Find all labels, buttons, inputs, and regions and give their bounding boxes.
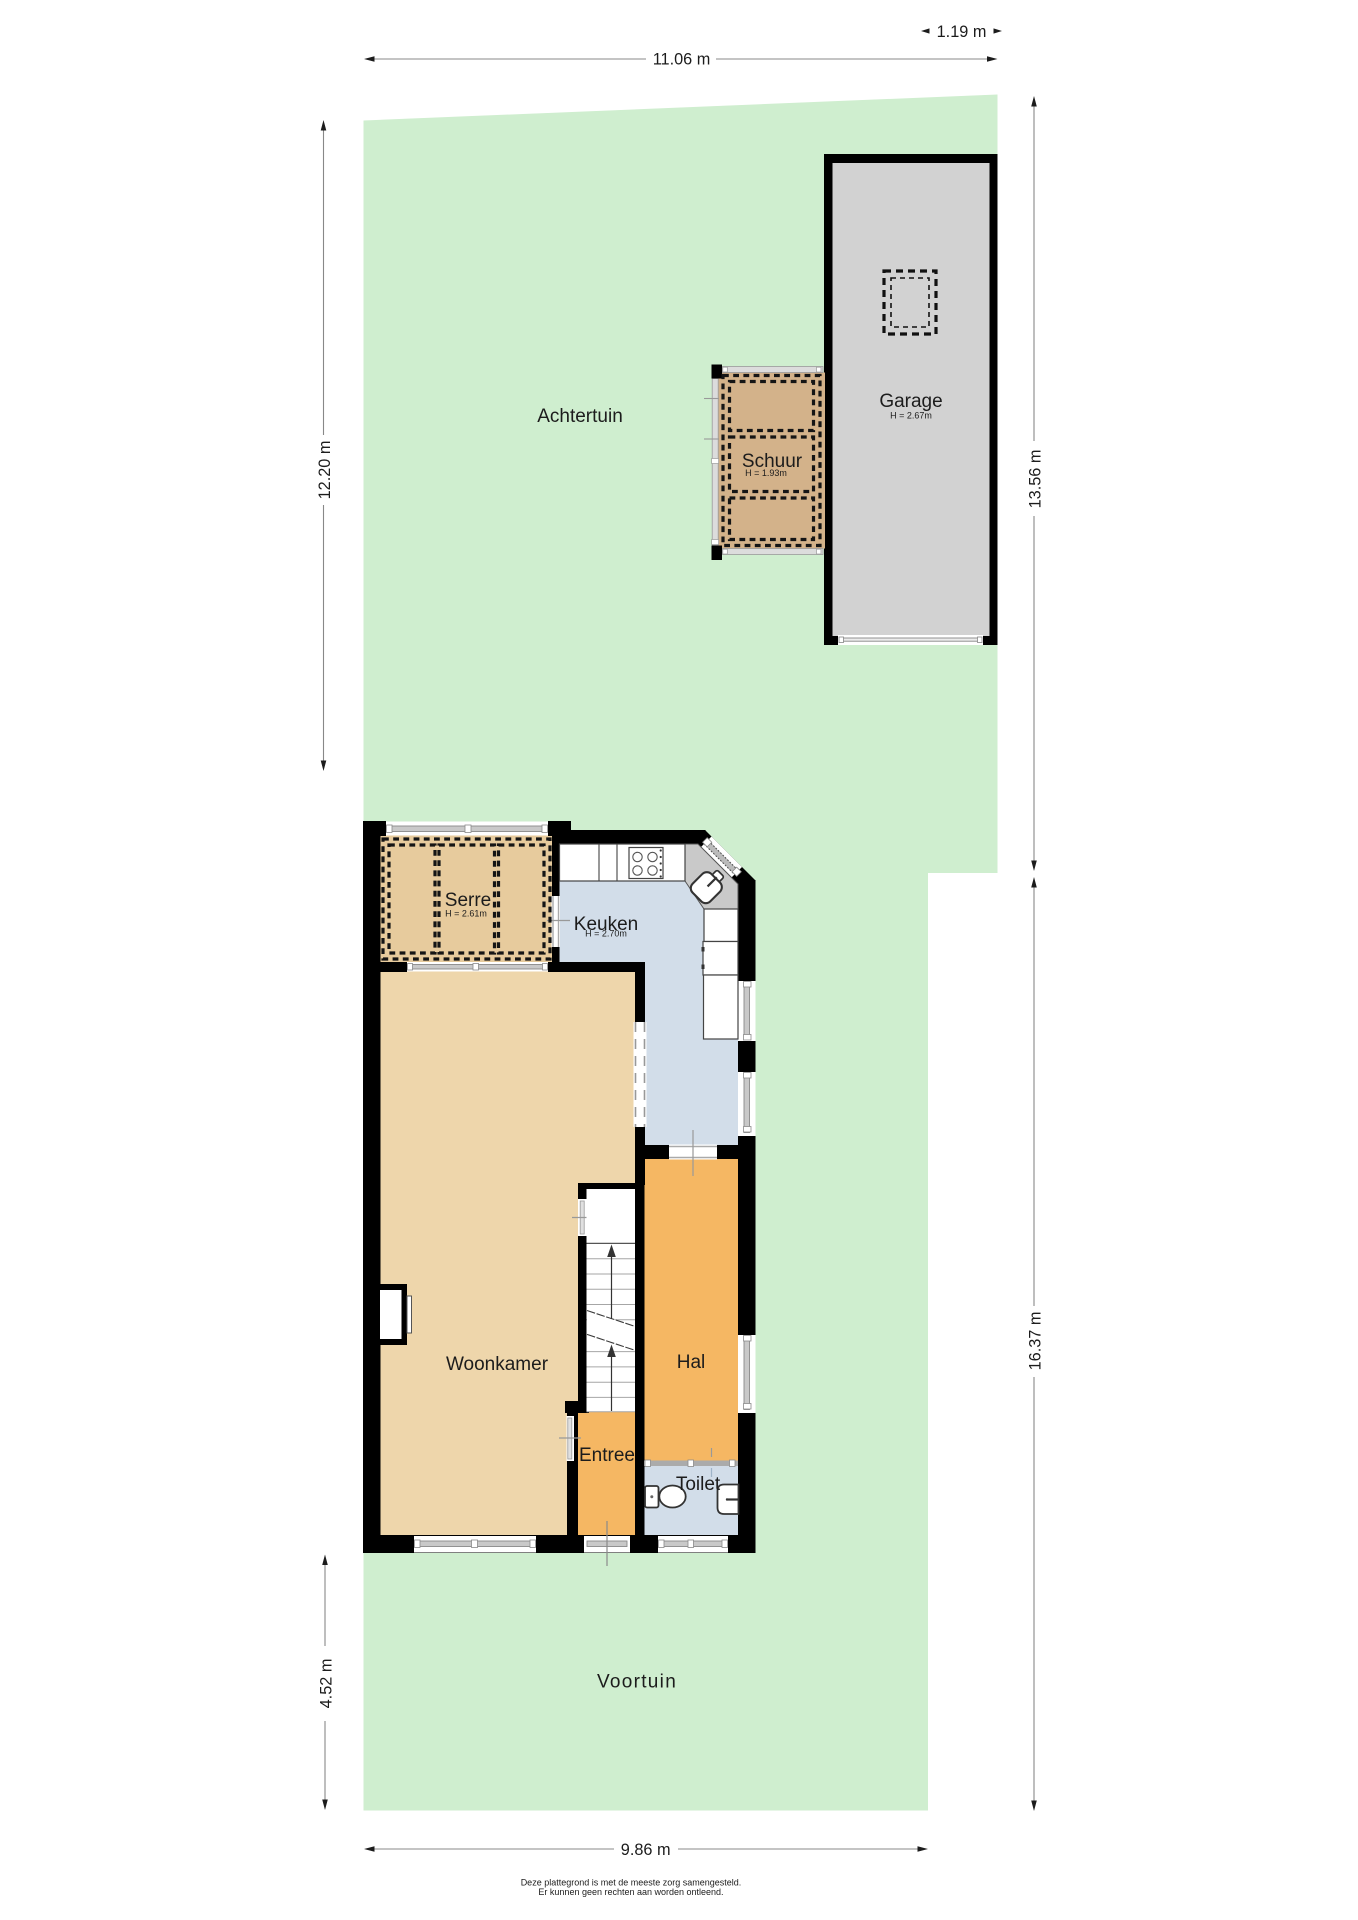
svg-text:1.19 m: 1.19 m — [937, 23, 987, 41]
svg-text:Garage: Garage — [879, 391, 942, 412]
svg-text:11.06 m: 11.06 m — [653, 51, 711, 69]
svg-text:9.86 m: 9.86 m — [621, 1841, 671, 1859]
svg-text:H = 2.70m: H = 2.70m — [585, 929, 627, 939]
svg-text:Toilet: Toilet — [676, 1474, 721, 1495]
svg-text:Achtertuin: Achtertuin — [537, 406, 623, 427]
svg-text:4.52 m: 4.52 m — [318, 1659, 336, 1709]
svg-text:H = 1.93m: H = 1.93m — [745, 468, 787, 478]
svg-text:12.20 m: 12.20 m — [316, 441, 334, 500]
svg-text:H = 2.61m: H = 2.61m — [445, 909, 487, 919]
svg-text:Voortuin: Voortuin — [597, 1672, 677, 1693]
svg-text:H = 2.67m: H = 2.67m — [890, 411, 932, 421]
svg-text:Deze plattegrond is met de mee: Deze plattegrond is met de meeste zorg s… — [521, 1878, 742, 1888]
svg-text:16.37 m: 16.37 m — [1027, 1312, 1045, 1371]
svg-text:Hal: Hal — [677, 1352, 706, 1373]
svg-text:Woonkamer: Woonkamer — [446, 1354, 549, 1375]
svg-text:Er kunnen geen rechten aan wor: Er kunnen geen rechten aan worden ontlee… — [538, 1887, 723, 1897]
svg-text:13.56 m: 13.56 m — [1027, 450, 1045, 509]
svg-text:Entree: Entree — [579, 1445, 635, 1466]
